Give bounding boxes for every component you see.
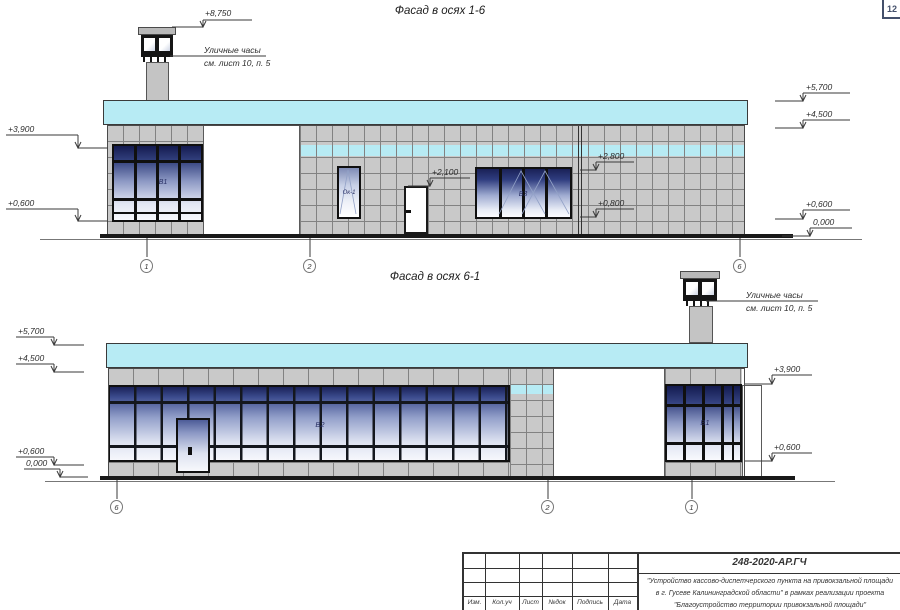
elevation-label: 0,000 [813,217,834,227]
window-label-b2: В2 [305,421,335,429]
facade1-title: Фасад в осях 1-6 [360,5,520,17]
facade1-street-clock [141,35,173,57]
document-number: 248-2020-АР.ГЧ [639,557,900,568]
facade1-base-line [40,239,862,240]
facade1-wall-seam [578,125,582,237]
elevation-label: +4,500 [18,353,44,363]
clock-legs [686,301,714,306]
axis-marker-6: 6 [733,259,746,273]
clock-face [144,38,155,51]
title-block-line [464,596,637,597]
column-header-koluch: Кол.уч [485,599,519,606]
window-label-ok1: Ок-1 [336,189,362,197]
elevation-label: +4,500 [806,109,832,119]
axis-marker-2: 2 [541,500,554,514]
column-header-data: Дата [608,599,637,606]
facade2-base-line [45,481,835,482]
project-description-line1: "Устройство кассово-диспетчерского пункт… [641,576,899,588]
facade2-ground-line [100,476,795,480]
title-block-line [464,568,637,569]
elevation-label: +5,700 [18,326,44,336]
column-header-izm: Изм. [464,599,485,606]
axis-marker-1: 1 [140,259,153,273]
window-label-b1: В1 [150,179,176,187]
facade1-roof-fascia [103,100,748,125]
axis-marker-1: 1 [685,500,698,514]
title-block-line [639,573,900,574]
title-block: Изм. Кол.уч Лист №док Подпись Дата 248-2… [462,552,900,610]
facade1-ground-line [100,234,793,238]
clock-note-line2: см. лист 10, п. 5 [746,303,812,313]
clock-note-line2: см. лист 10, п. 5 [204,58,270,68]
clock-note-line1: Уличные часы [204,45,261,55]
clock-face [702,282,714,295]
elevation-label: +0,800 [598,198,624,208]
column-header-list: Лист [519,599,542,606]
facade2-roof-fascia [106,343,748,368]
elevation-label: +3,900 [8,124,34,134]
axis-marker-2: 2 [303,259,316,273]
elevation-label: +0,600 [806,199,832,209]
elevation-label: +8,750 [205,8,231,18]
elevation-label: 0,000 [26,458,47,468]
facade1-chimney-stack [146,62,169,101]
clock-face [159,38,170,51]
facade2-door [176,418,210,473]
elevation-label: +0,600 [774,442,800,452]
elevation-label: +2,800 [598,151,624,161]
facade2-b1-top-band [665,368,742,384]
elevation-label: +5,700 [806,82,832,92]
facade1-chimney-cap [138,27,176,35]
project-description-line3: "Благоустройство территории привокзально… [641,600,899,610]
project-description-line2: в г. Гусеве Калининградской области" в р… [641,588,899,600]
facade2-white-wall [553,368,665,478]
facade2-title: Фасад в осях 6-1 [355,271,515,283]
column-header-podpis: Подпись [572,599,608,606]
elevation-label: +3,900 [774,364,800,374]
window-label-b1: В1 [692,419,718,427]
facade2-chimney-stack [689,306,713,343]
drawing-sheet: 12 Фасад в осях 1-6 +8,750 Уличные часы … [0,0,900,610]
title-block-line [464,582,637,583]
sheet-number: 12 [887,4,897,14]
facade2-side-return [742,385,762,480]
facade1-door [404,186,428,234]
facade2-curtain-top-band [108,368,510,385]
window-label-b3: В3 [509,191,537,199]
column-header-ndok: №док [542,599,572,606]
facade2-street-clock [683,279,717,301]
door-handle-icon [188,447,192,455]
elevation-label: +2,100 [432,167,458,177]
elevation-label: +0,600 [8,198,34,208]
door-handle-icon [406,210,411,213]
facade2-tile-pier [510,368,553,478]
clock-face [686,282,698,295]
facade2-chimney-cap [680,271,720,279]
facade1-white-wall [203,125,300,237]
elevation-label: +0,600 [18,446,44,456]
axis-marker-6: 6 [110,500,123,514]
clock-legs [143,57,171,62]
clock-note-line1: Уличные часы [746,290,803,300]
sheet-number-box: 12 [882,0,900,19]
